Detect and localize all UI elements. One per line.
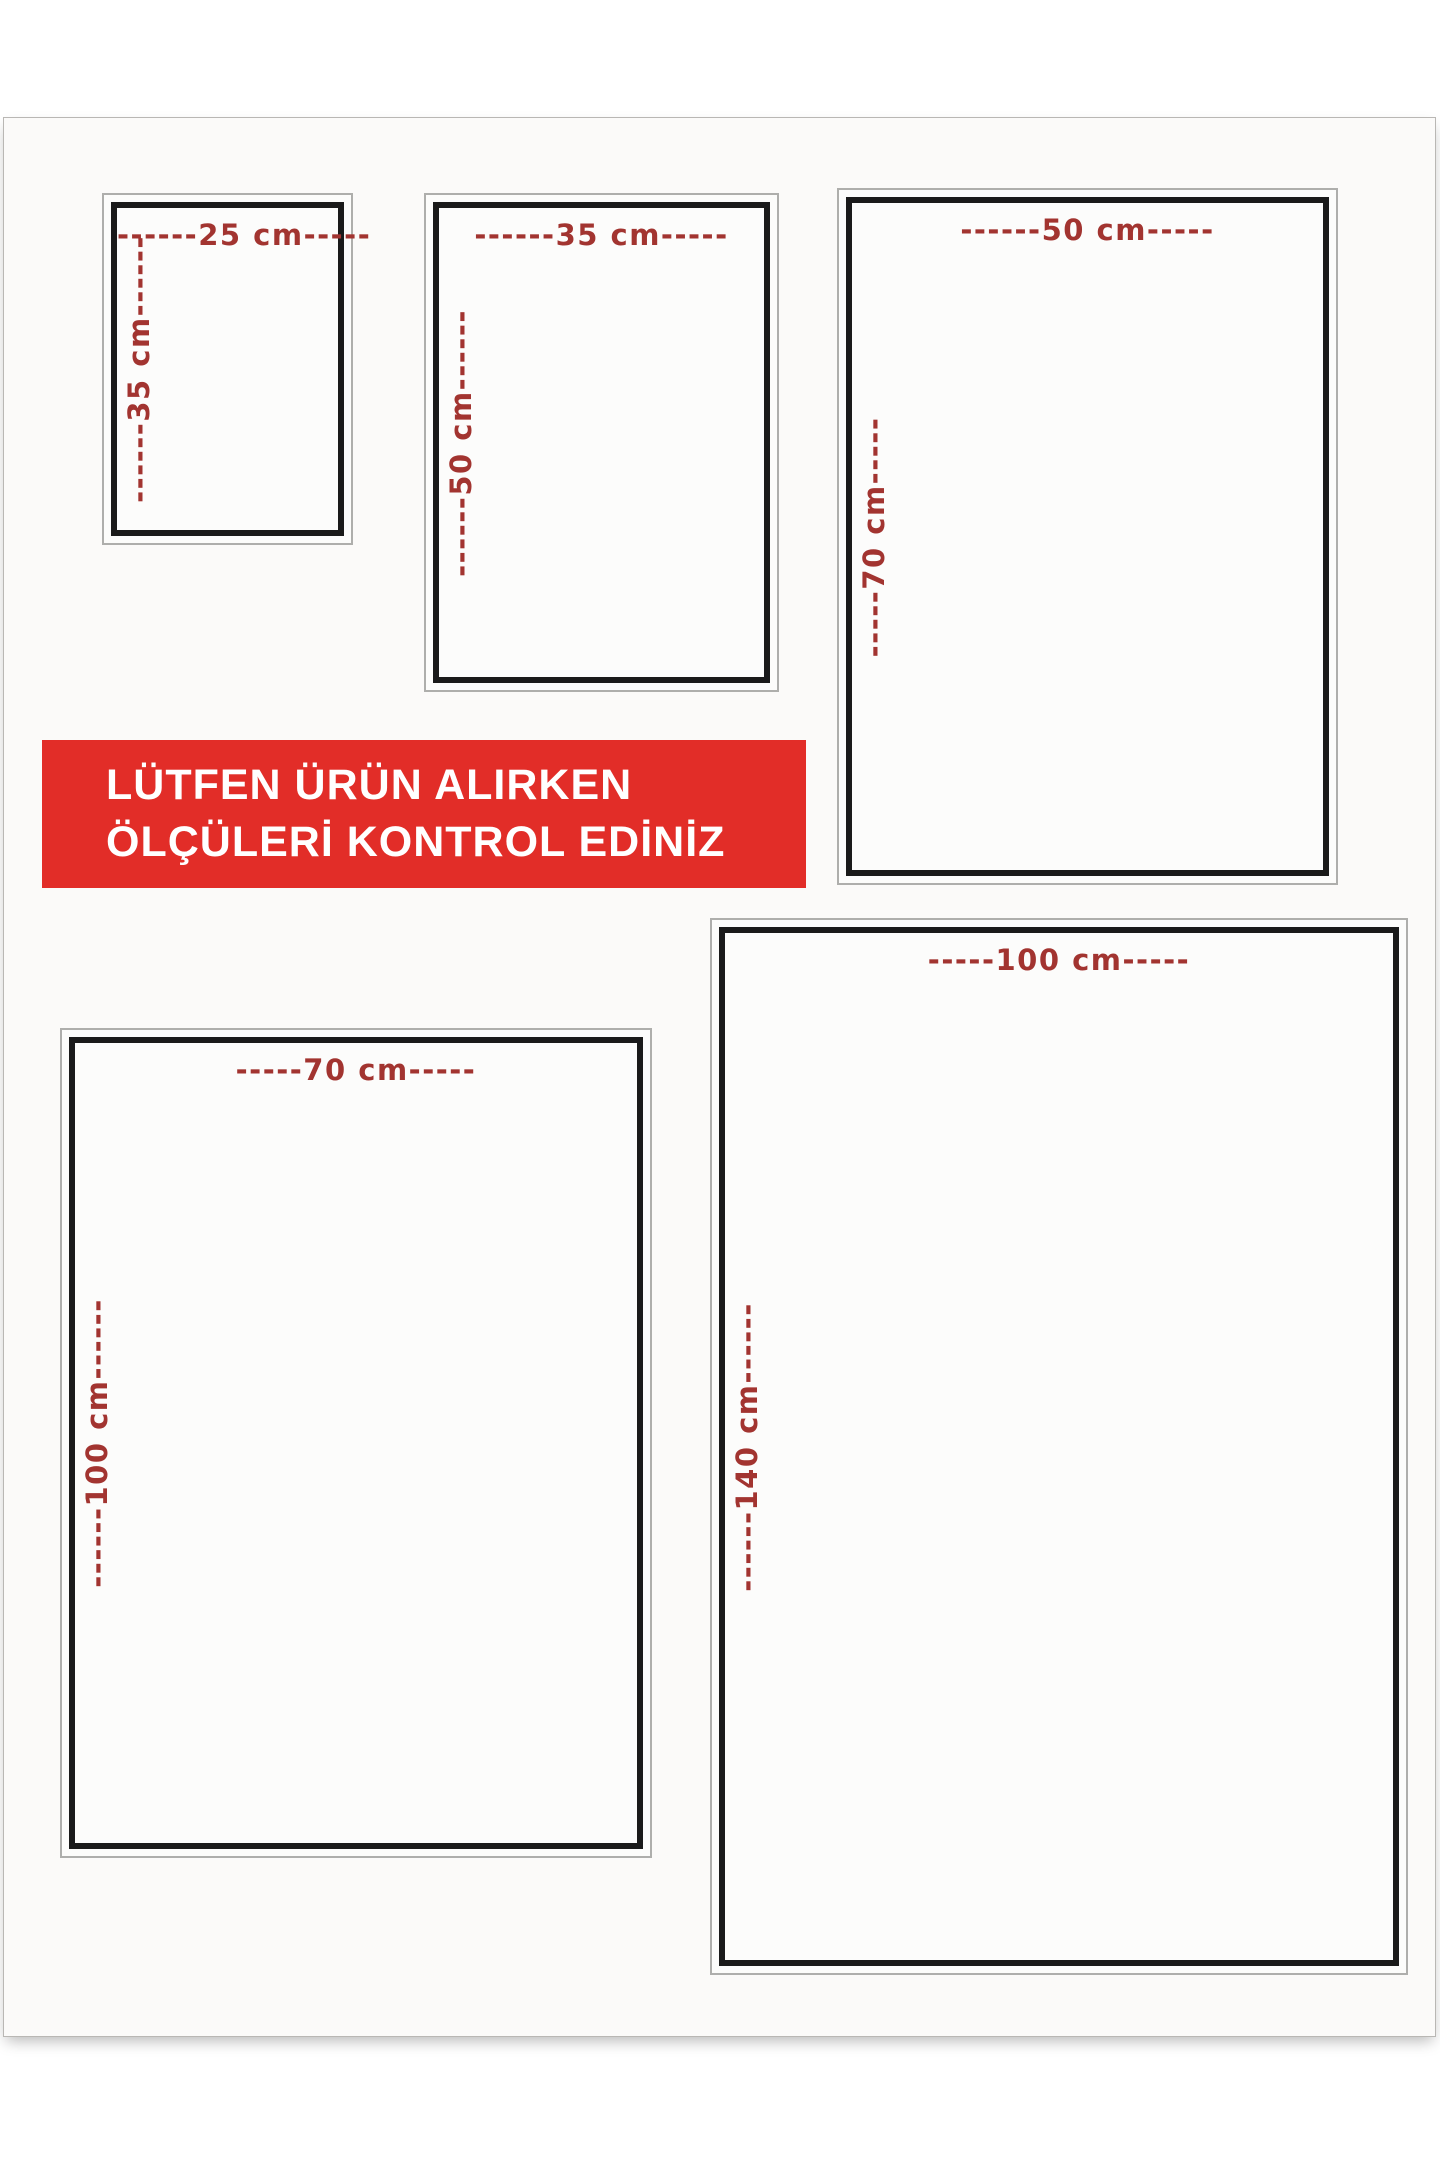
width-dimension-label: -----70 cm-----	[75, 1053, 637, 1087]
height-dimension-label: ------50 cm------	[444, 309, 478, 577]
size-box-70x100-frame: -----70 cm----- ------100 cm------	[69, 1037, 643, 1849]
size-box-25x35-frame: ------25 cm----- ------35 cm------	[111, 202, 344, 536]
warning-banner-line-2: ÖLÇÜLERİ KONTROL EDİNİZ	[106, 818, 806, 867]
size-box-100x140-frame: -----100 cm----- ------140 cm------	[719, 927, 1399, 1966]
height-dimension-label: ------35 cm------	[122, 235, 156, 503]
height-dimension-label: ------140 cm------	[730, 1302, 764, 1591]
size-box-50x70-frame: ------50 cm----- -----70 cm-----	[846, 197, 1329, 876]
size-box-35x50-frame: ------35 cm----- ------50 cm------	[433, 202, 770, 683]
height-dimension-label: -----70 cm-----	[857, 416, 891, 657]
width-dimension-label: ------50 cm-----	[852, 213, 1323, 247]
size-box-25x35: ------25 cm----- ------35 cm------	[102, 193, 353, 545]
size-guide-canvas: ------25 cm----- ------35 cm------ -----…	[0, 0, 1440, 2160]
size-box-50x70: ------50 cm----- -----70 cm-----	[837, 188, 1338, 885]
size-box-70x100: -----70 cm----- ------100 cm------	[60, 1028, 652, 1858]
size-box-35x50: ------35 cm----- ------50 cm------	[424, 193, 779, 692]
warning-banner: LÜTFEN ÜRÜN ALIRKEN ÖLÇÜLERİ KONTROL EDİ…	[42, 740, 806, 888]
size-box-100x140: -----100 cm----- ------140 cm------	[710, 918, 1408, 1975]
width-dimension-label: -----100 cm-----	[725, 943, 1393, 977]
warning-banner-line-1: LÜTFEN ÜRÜN ALIRKEN	[106, 761, 806, 810]
height-dimension-label: ------100 cm------	[80, 1298, 114, 1587]
width-dimension-label: ------35 cm-----	[439, 218, 764, 252]
